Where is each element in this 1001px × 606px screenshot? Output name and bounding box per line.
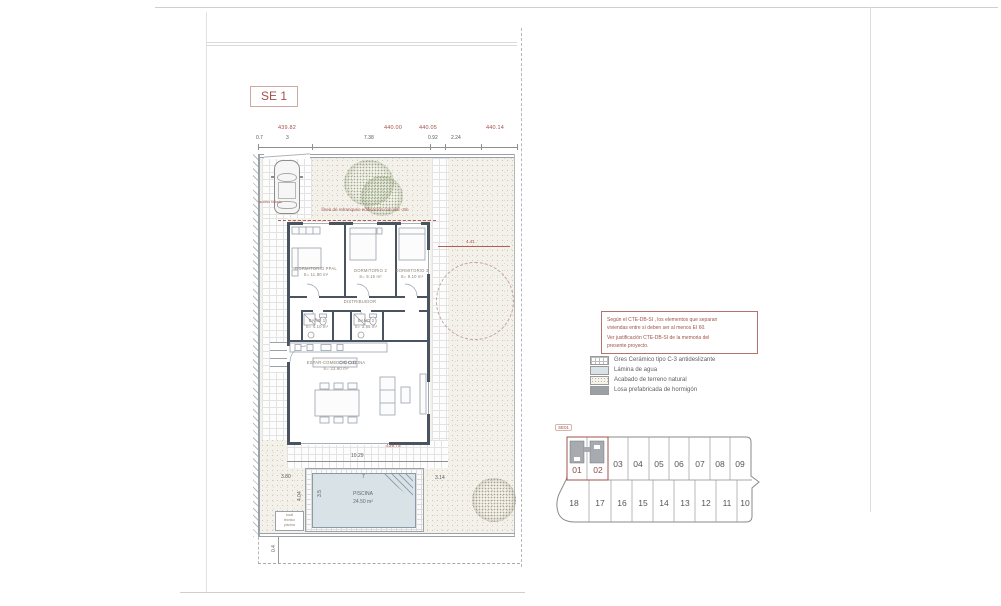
pool-label: PISCINA 24.50 m² (333, 491, 393, 506)
plot-boundary-right (514, 154, 515, 537)
legend-label: Acabado de terreno natural (614, 377, 687, 383)
setback-dashed-line (278, 220, 436, 221)
pool-tech-box: local técnico piscina (275, 511, 304, 531)
room-label-bath1: BAÑO 1 S= 4.10 m² (289, 318, 345, 330)
legend-swatch-terrain (590, 376, 609, 385)
legend-item: Gres Cerámico tipo C-3 antideslizante (590, 356, 715, 364)
entry-steps (270, 342, 287, 372)
note-line: Según el CTE-DB-SI , los elementos que s… (607, 316, 753, 324)
keyplan: 01 02 03 04 05 06 07 08 09 18 17 16 15 1… (553, 433, 765, 528)
dimension-line (258, 147, 517, 148)
pool-dim: 3.80 (280, 475, 292, 481)
street-offset-label: 0.4 (272, 544, 278, 553)
legend-swatch-ceramic (590, 356, 609, 365)
sheet-divider-dashed (521, 28, 522, 567)
keyplan-cell: 17 (595, 498, 605, 508)
note-line: presente proyecto. (607, 342, 753, 350)
street-dash-left (258, 537, 259, 564)
street-line-2 (206, 45, 517, 46)
keyplan-cell: 11 (723, 498, 732, 508)
site-plan: acceso rodado línea de retranqueo edific… (258, 150, 516, 540)
street-line-1 (206, 42, 517, 43)
boundary-wall-hatch (253, 154, 258, 537)
note-line: Ver justificación CTE-DB-SI de la memori… (607, 334, 753, 342)
street-dash-bottom (258, 563, 520, 564)
tree-dim-line (438, 246, 510, 247)
terrace-elevation: 439.75 (386, 444, 401, 450)
pool-dim: 3.14 (434, 476, 446, 482)
note-line: viviendas entre sí deben ser al menos EI… (607, 324, 753, 332)
elevation-label: 440.05 (419, 125, 437, 131)
keyplan-cell: 09 (735, 459, 745, 469)
keyplan-cell: 02 (593, 465, 603, 475)
elevation-label: 440.00 (384, 125, 402, 131)
car-windshield (277, 173, 297, 182)
room-label-bath2: BAÑO 2 S= 3.85 m² (338, 318, 394, 330)
legend-item: Losa prefabricada de hormigón (590, 386, 697, 394)
parked-car (274, 160, 300, 214)
tree-dim-label: 4.41 (466, 239, 475, 244)
tree-canopy (472, 478, 516, 522)
room-label-living: ESTAR-COMEDOR-COCINA S= 33.90 m² (306, 360, 366, 372)
keyplan-cell: 14 (659, 498, 669, 508)
sheet-right-rule (870, 7, 871, 512)
dimension-label: 0.7 (255, 136, 264, 142)
pool-dim: 4.04 (298, 490, 304, 502)
sheet-code-label: SE 1 (261, 89, 287, 103)
existing-tree-circle (436, 262, 514, 340)
pool-dim: 3.5 (318, 489, 324, 498)
dim-tick (517, 144, 518, 150)
legend-swatch-water (590, 366, 609, 375)
keyplan-cell: 10 (740, 498, 750, 508)
keyplan-tag: SE01 (555, 424, 572, 431)
legend-label: Gres Cerámico tipo C-3 antideslizante (614, 357, 715, 363)
sheet-left-rule (206, 12, 207, 592)
legend-swatch-slab (590, 386, 609, 395)
car-mirror (300, 176, 303, 178)
room-label-bedroom3: DORMITORIO 3 S= 9.10 m² (384, 268, 440, 280)
keyplan-cell: 07 (695, 459, 705, 469)
keyplan-cell: 12 (701, 498, 711, 508)
house-floorplan (287, 222, 430, 445)
legend-label: Lámina de agua (614, 367, 657, 373)
dimension-label: 2.24 (450, 136, 462, 142)
fire-code-note: Según el CTE-DB-SI , los elementos que s… (601, 311, 758, 354)
keyplan-cell: 06 (674, 459, 684, 469)
car-roof (278, 182, 296, 199)
dimension-label: 7.38 (363, 136, 375, 142)
legend-item: Lámina de agua (590, 366, 657, 374)
street-offset-line (278, 537, 279, 564)
keyplan-cell: 13 (680, 498, 690, 508)
entry-path (262, 218, 288, 440)
car-mirror (271, 176, 274, 178)
keyplan-cell: 18 (569, 498, 579, 508)
terrace-dim-label: 10.29 (350, 454, 365, 460)
access-note: acceso rodado (259, 200, 282, 204)
keyplan-cell: 05 (654, 459, 664, 469)
plan-sheet: SE 1 439.82 440.00 440.05 440.14 0.7 3 7… (0, 0, 1001, 606)
sheet-bottom-rule (180, 592, 525, 593)
keyplan-cell: 08 (715, 459, 725, 469)
keyplan-cell: 15 (638, 498, 648, 508)
room-label-master: DORMITORIO PPAL S= 11.80 m² (288, 266, 344, 278)
plot-boundary-bottom (258, 533, 515, 534)
keyplan-cell: 16 (617, 498, 627, 508)
setback-note: línea de retranqueo edificación con vial… (290, 207, 440, 212)
sheet-code-box: SE 1 (250, 86, 298, 107)
dimension-label: 0.92 (427, 136, 439, 142)
keyplan-cell: 03 (613, 459, 623, 469)
elevation-label: 440.14 (486, 125, 504, 131)
plot-boundary-bottom2 (258, 536, 515, 537)
legend-item: Acabado de terreno natural (590, 376, 687, 384)
pool-dim: 7 (361, 475, 366, 481)
room-label-hall: DISTRIBUIDOR (332, 299, 388, 305)
elevation-label: 439.82 (278, 125, 296, 131)
sheet-top-rule (155, 7, 998, 8)
dimension-label: 3 (285, 136, 290, 142)
terrace-dim-line (287, 461, 448, 462)
legend-label: Losa prefabricada de hormigón (614, 387, 697, 393)
keyplan-cell: 01 (572, 465, 582, 475)
keyplan-cell: 04 (633, 459, 643, 469)
